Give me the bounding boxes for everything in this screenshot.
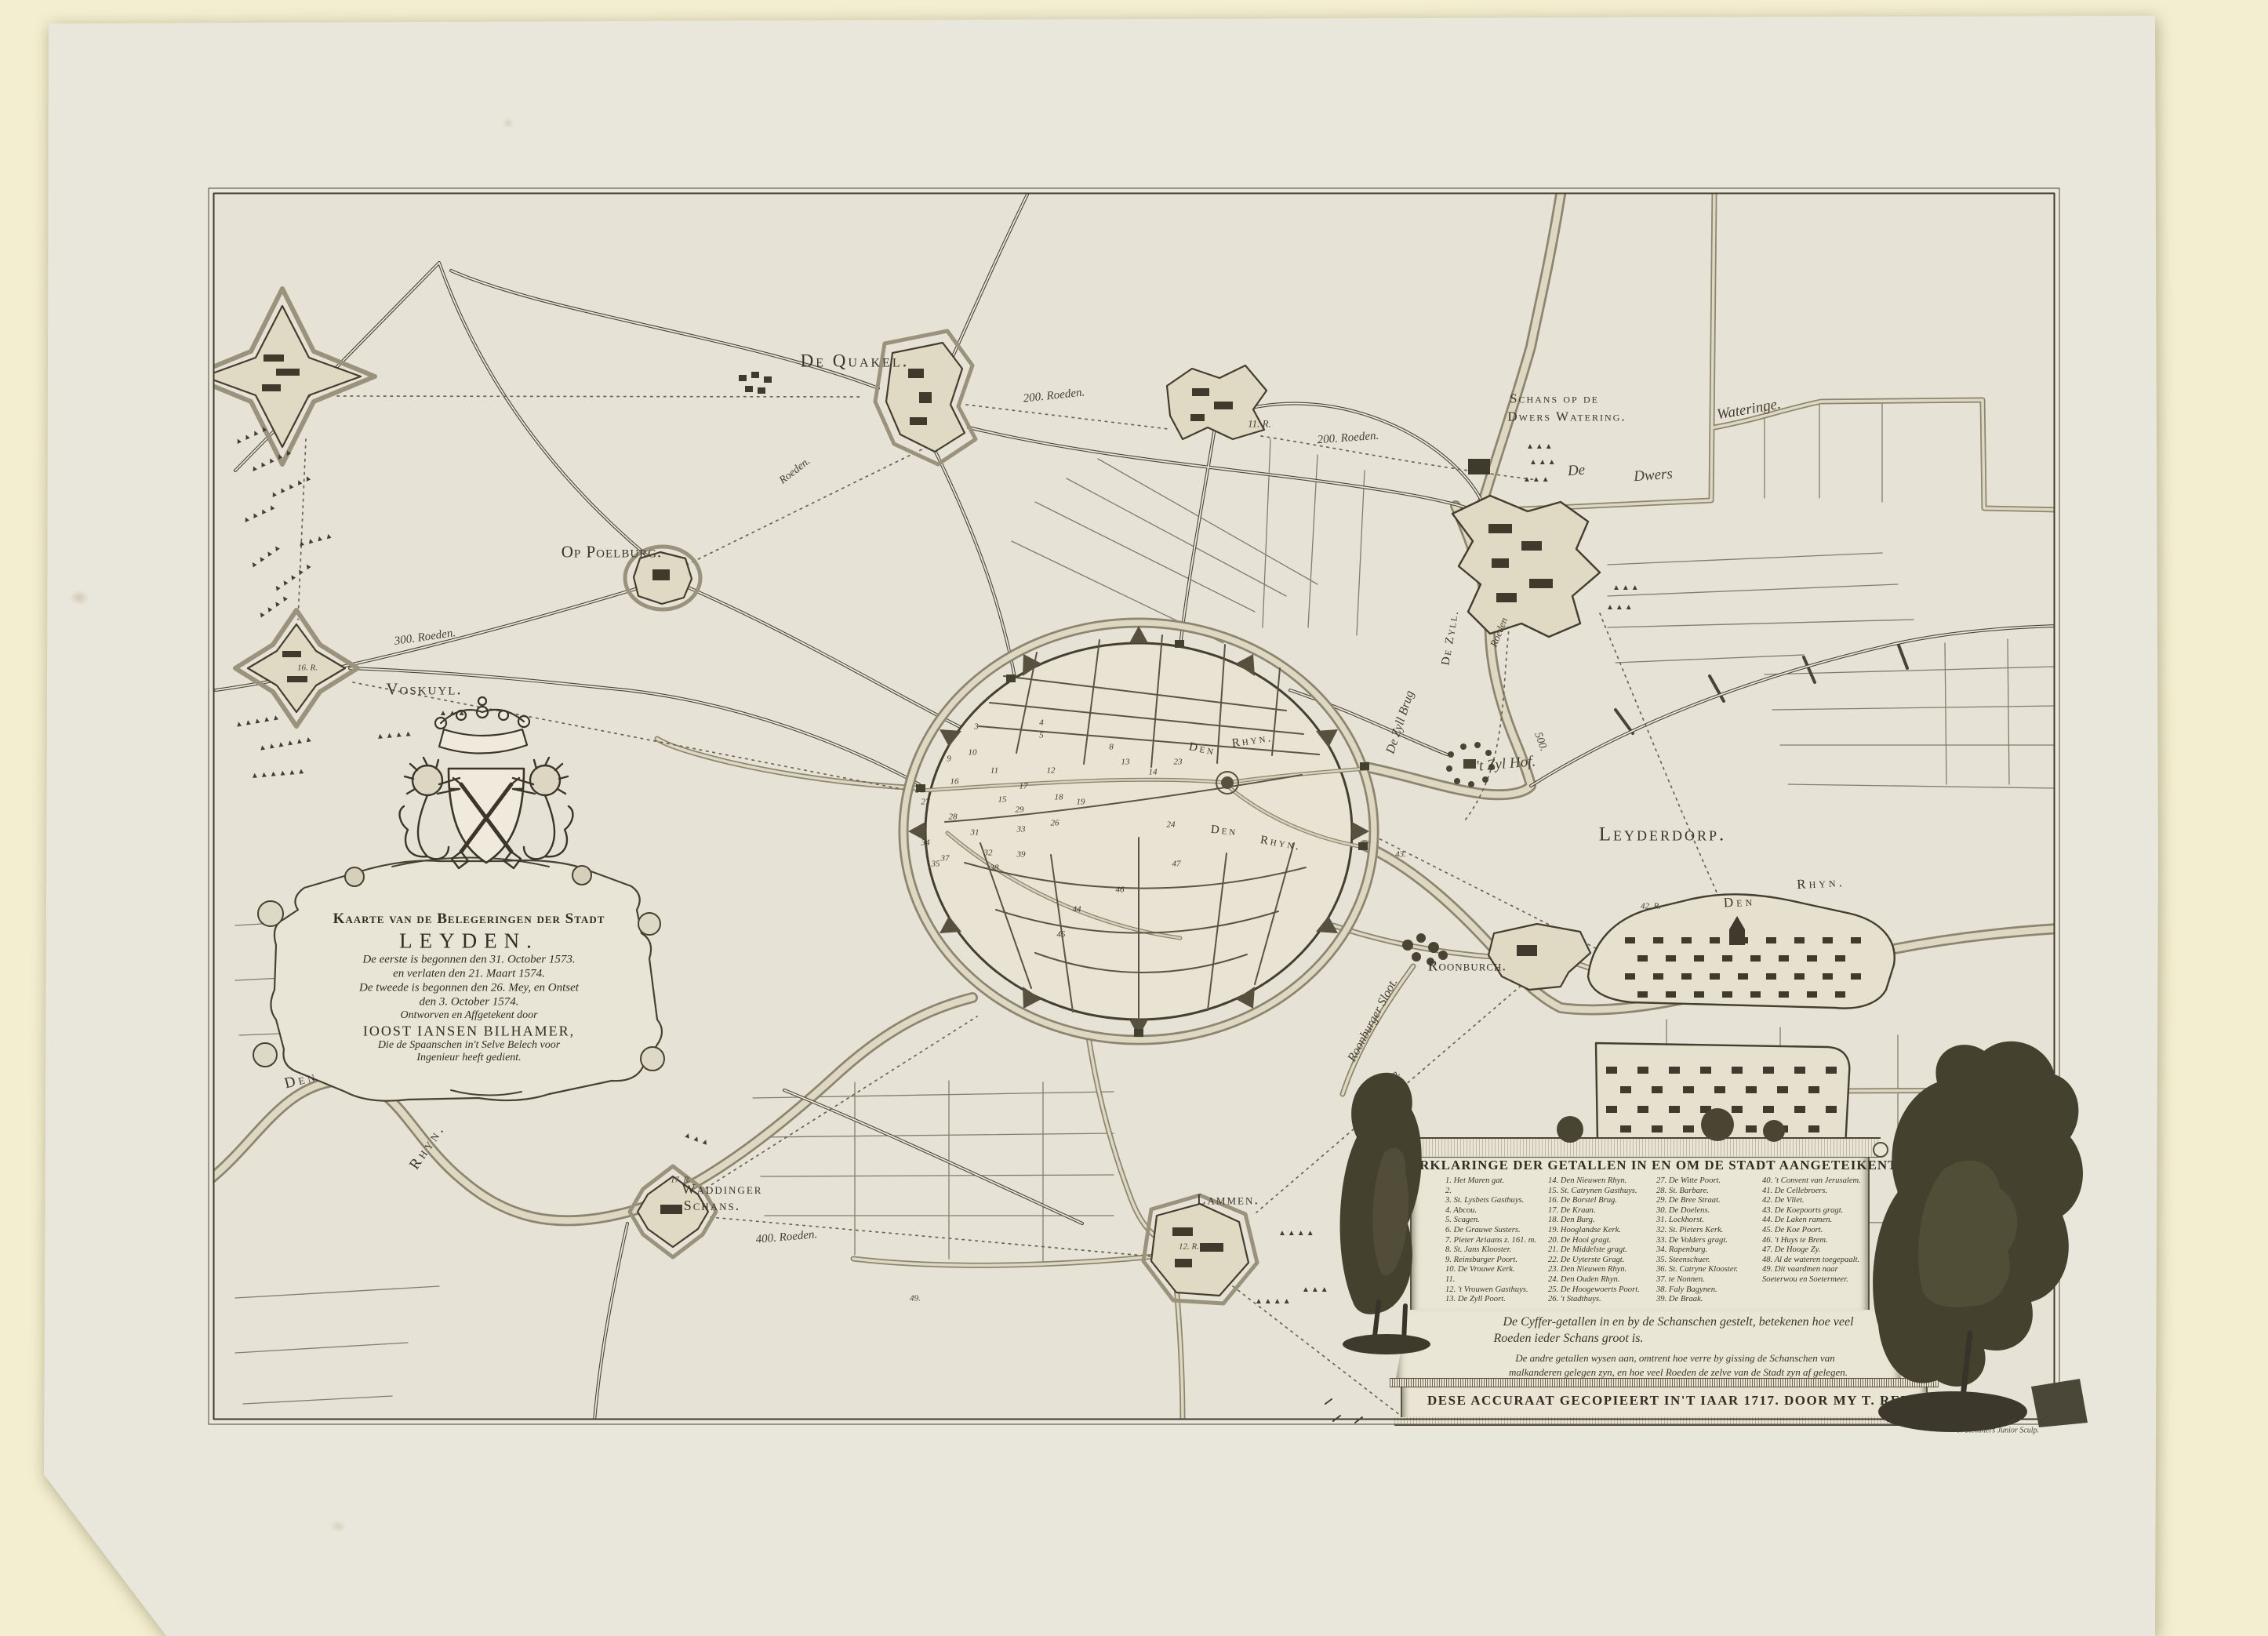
tent-row-icon: ▲▲▲ <box>439 710 467 718</box>
city-number-label: 13 <box>1121 758 1130 767</box>
city-number-label: 11 <box>990 767 998 776</box>
tent-row-icon: ▲▲▲ <box>1523 476 1551 484</box>
tent-row-icon: ▲▲▲▲ <box>242 502 278 525</box>
city-number-label: 24 <box>1167 821 1176 830</box>
city-number-label: 5 <box>1039 732 1044 740</box>
city-number-label: 26 <box>1051 820 1059 828</box>
map-label: 12. R. <box>1179 1243 1199 1252</box>
tent-row-icon: ▲▲▲▲ <box>1278 1230 1316 1238</box>
tent-row-icon: ▲▲▲▲▲ <box>234 714 282 729</box>
tent-row-icon: ▲▲▲▲▲▲ <box>251 768 307 780</box>
map-label: Leyderdorp. <box>1599 825 1727 845</box>
map-label: Op Poelburg. <box>562 544 663 561</box>
city-number-label: 8 <box>1109 743 1114 752</box>
city-number-label: 10 <box>969 749 977 758</box>
map-label: Lammen. <box>1197 1193 1259 1208</box>
map-label: Voskuyl. <box>386 682 462 698</box>
map-label: Roeden <box>1488 616 1510 648</box>
map-label: Roonburger Sloot. <box>1346 976 1400 1063</box>
map-label: 49. <box>910 1295 921 1303</box>
map-label: Dwers Watering. <box>1507 410 1626 424</box>
map-label: 200. Roeden. <box>1317 431 1379 446</box>
tent-row-icon: ▲▲▲▲ <box>1255 1298 1292 1306</box>
city-number-label: 23 <box>1174 758 1183 767</box>
cartouche-note1: Die de Spaanschen in't Selve Belech voor <box>378 1039 560 1052</box>
map-label: Rhyn. <box>1797 875 1845 891</box>
tent-row-icon: ▲▲▲▲ <box>234 424 271 446</box>
city-number-label: 34 <box>921 839 930 848</box>
city-number-label: 12 <box>1047 767 1056 776</box>
tent-row-icon: ▲▲▲ <box>682 1131 711 1148</box>
map-label: 42. R. <box>1641 903 1661 911</box>
map-label: Schans op de <box>1510 392 1599 405</box>
map-label: De Zyll. <box>1440 609 1461 666</box>
cartouche-heading: Kaarte van de Belegeringen der Stadt <box>333 911 605 928</box>
city-number-label: 32 <box>984 849 993 858</box>
city-number-label: 16 <box>950 778 959 787</box>
city-number-label: 27 <box>921 798 930 807</box>
tent-row-icon: ▲▲▲▲ <box>249 543 284 570</box>
tent-row-icon: ▲▲▲ <box>1529 459 1557 467</box>
cartouche-title: LEYDEN. <box>399 929 539 954</box>
map-label: Waddinger <box>682 1182 763 1196</box>
map-label: Dwers <box>1634 467 1674 484</box>
city-number-label: 38 <box>990 864 999 873</box>
map-label: Roeden. <box>1367 1067 1401 1090</box>
map-label: 300. Roeden. <box>394 627 456 648</box>
map-label: De <box>1567 463 1585 478</box>
tent-row-icon: ▲▲▲▲ <box>297 532 336 549</box>
tent-row-icon: ▲▲▲▲ <box>376 730 414 741</box>
city-number-label: 37 <box>941 855 950 863</box>
labels-layer: Kaarte van de Belegeringen der Stadt LEY… <box>0 0 2268 1636</box>
tent-row-icon: ▲▲▲▲▲ <box>269 473 314 500</box>
map-label: Rhyn. <box>407 1121 448 1172</box>
city-number-label: 15 <box>998 796 1007 805</box>
cartouche-line4: den 3. October 1574. <box>419 996 518 1009</box>
city-number-label: 14 <box>1149 769 1158 777</box>
city-number-label: 46 <box>1116 886 1125 895</box>
city-number-label: 18 <box>1055 794 1063 802</box>
cartouche-author: IOOST IANSEN BILHAMER, <box>363 1023 575 1040</box>
city-number-label: 39 <box>1017 851 1026 860</box>
map-label: De Zyll Brug <box>1384 689 1416 755</box>
tent-row-icon: ▲▲▲▲ <box>256 593 292 620</box>
city-number-label: 47 <box>1172 860 1181 869</box>
map-label: Den <box>283 1069 319 1092</box>
map-label: 200. Roeden. <box>1023 387 1085 405</box>
map-label: 16. R. <box>297 664 318 673</box>
map-label: 43. <box>1395 851 1406 860</box>
city-number-label: 33 <box>1017 826 1026 834</box>
cartouche-line3: De tweede is begonnen den 26. Mey, en On… <box>359 982 579 995</box>
city-number-label: 29 <box>1016 806 1024 815</box>
tent-row-icon: ▲▲▲ <box>1606 604 1634 612</box>
city-number-label: 31 <box>971 829 980 838</box>
tent-row-icon: ▲▲▲ <box>1526 443 1554 451</box>
map-label: Den <box>1210 824 1238 839</box>
tent-row-icon: ▲▲▲ <box>1612 584 1641 592</box>
map-label: Rhyn. <box>1259 834 1302 853</box>
tent-row-icon: ▲▲▲▲▲ <box>249 447 295 474</box>
map-label: 17. R. <box>671 1176 691 1185</box>
city-number-label: 3 <box>974 723 979 732</box>
map-label: Den <box>1723 894 1755 909</box>
city-number-label: 44 <box>1073 906 1081 914</box>
engraved-map-of-leyden: VERKLARINGE DER GETALLEN IN EN OM DE STA… <box>0 0 2268 1636</box>
city-number-label: 35 <box>932 860 940 869</box>
city-number-label: 45 <box>1057 931 1066 940</box>
city-number-label: 9 <box>947 755 951 764</box>
map-label: Schans. <box>684 1198 741 1212</box>
map-label: 11. R. <box>1248 419 1271 429</box>
cartouche-line2: en verlaten den 21. Maart 1574. <box>393 968 545 981</box>
tent-row-icon: ▲▲▲▲▲ <box>272 561 314 594</box>
city-number-label: 4 <box>1039 719 1044 728</box>
cartouche-line1: De eerste is begonnen den 31. October 15… <box>362 954 575 967</box>
cartouche-note2: Ingenieur heeft gedient. <box>416 1052 521 1064</box>
tent-row-icon: ▲▲▲ <box>1302 1286 1330 1294</box>
map-label: De Quakel. <box>801 352 910 370</box>
city-number-label: 17 <box>1020 783 1028 791</box>
map-label: 400. Roeden. <box>755 1229 818 1246</box>
map-label: 't Zyl Hof. <box>1475 754 1536 774</box>
map-label: Roonburch. <box>1428 959 1507 974</box>
tent-row-icon: ▲▲▲▲▲▲ <box>258 736 314 753</box>
map-label: Rhyn. <box>1231 733 1274 750</box>
city-number-label: 19 <box>1077 798 1085 807</box>
city-number-label: 28 <box>949 813 958 822</box>
map-label: Den <box>1188 741 1217 758</box>
map-label: Wateringe. <box>1716 397 1782 423</box>
map-label: Roeden. <box>778 456 812 486</box>
cartouche-credit: Ontworven en Affgetekent door <box>400 1009 537 1022</box>
map-label: 500. <box>1532 731 1549 753</box>
